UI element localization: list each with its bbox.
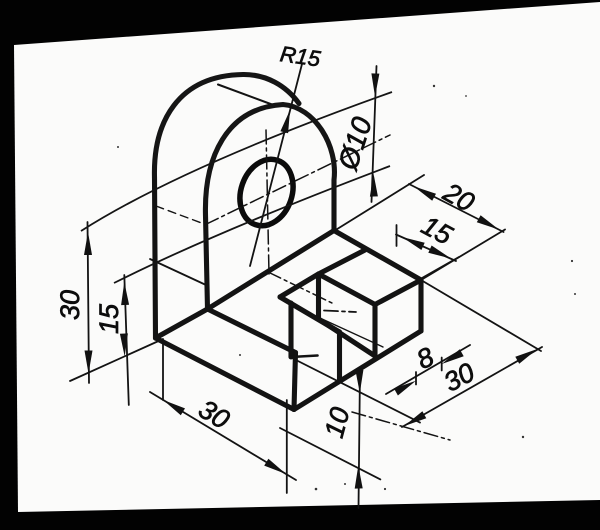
svg-text:20: 20 <box>438 176 480 217</box>
svg-text:30: 30 <box>193 394 234 435</box>
svg-text:15: 15 <box>94 303 124 334</box>
svg-text:R15: R15 <box>279 41 323 71</box>
svg-text:30: 30 <box>55 290 85 320</box>
svg-text:8: 8 <box>412 342 438 376</box>
svg-text:30: 30 <box>439 357 480 398</box>
svg-text:10: 10 <box>319 404 356 441</box>
svg-text:Ø10: Ø10 <box>332 113 378 174</box>
